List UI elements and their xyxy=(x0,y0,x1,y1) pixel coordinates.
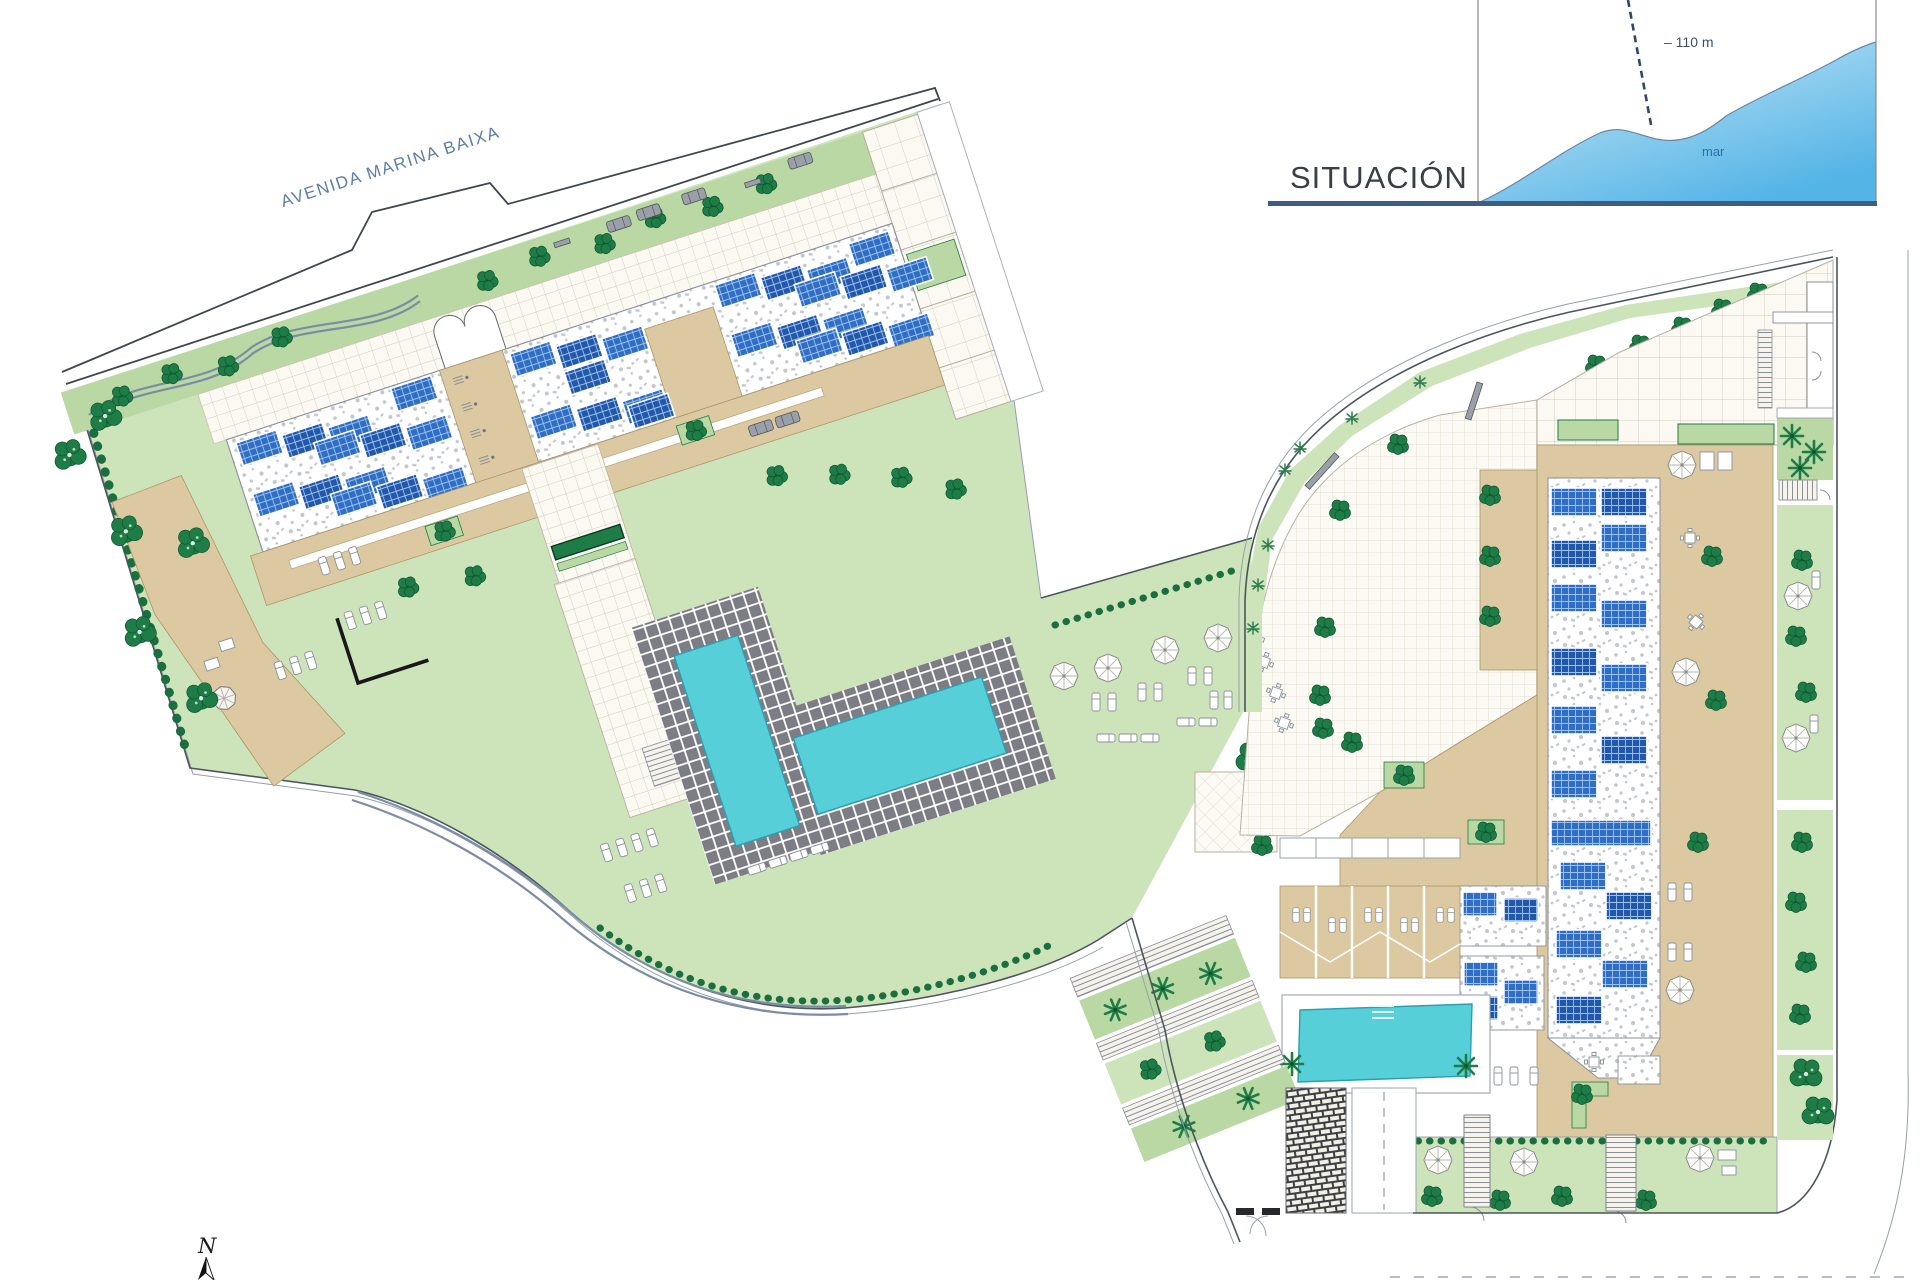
tree-icon xyxy=(1706,690,1727,711)
tree-icon xyxy=(1796,952,1817,973)
palm-icon xyxy=(1455,1055,1477,1077)
parasol-icon xyxy=(1784,582,1812,610)
solar-panel xyxy=(1463,892,1497,916)
lounger-icon xyxy=(1530,1067,1538,1085)
parasol-icon xyxy=(1424,1146,1452,1174)
lounger-icon xyxy=(1224,691,1232,709)
parasol-icon xyxy=(1672,658,1700,686)
spa-pad xyxy=(1618,1056,1660,1084)
solar-panel xyxy=(1551,820,1651,846)
lounger-icon xyxy=(1700,452,1714,470)
lounger-icon xyxy=(1718,452,1732,470)
tree-icon xyxy=(1688,832,1709,853)
east-garden-strips xyxy=(1777,408,1834,1140)
tree-icon xyxy=(1552,1186,1573,1207)
solar-panel xyxy=(1551,770,1597,798)
tree-icon xyxy=(1315,617,1336,638)
tree-icon xyxy=(1490,1190,1511,1211)
tree-icon xyxy=(1792,550,1813,571)
solar-panel xyxy=(1551,488,1597,516)
lounger-icon xyxy=(1177,718,1195,726)
tree-icon xyxy=(1330,500,1351,521)
tree-icon xyxy=(1796,682,1817,703)
tree-icon xyxy=(1313,718,1334,739)
solar-panel xyxy=(1606,892,1652,920)
tree-icon xyxy=(1480,485,1501,506)
lounger-icon xyxy=(1329,918,1335,932)
tree-icon xyxy=(1792,832,1813,853)
tree-icon xyxy=(1702,546,1723,567)
lounger-icon xyxy=(1138,683,1146,701)
solar-panel xyxy=(1551,540,1597,568)
lounger-icon xyxy=(1668,883,1676,901)
tree-icon xyxy=(1790,1004,1811,1025)
tree-icon xyxy=(1572,1084,1593,1105)
swimming-pool xyxy=(1298,1004,1472,1082)
lounger-icon xyxy=(1340,918,1346,932)
tree-icon xyxy=(1786,892,1807,913)
solar-panel xyxy=(1601,488,1647,516)
inset-title: SITUACIÓN xyxy=(1290,160,1468,195)
tree-icon xyxy=(1394,765,1415,786)
title-underline xyxy=(1268,201,1877,206)
solar-panel xyxy=(1464,962,1498,986)
solar-panel xyxy=(1504,980,1538,1004)
planter xyxy=(1678,424,1774,444)
palm-icon xyxy=(1781,425,1803,447)
tree-icon xyxy=(1480,606,1501,627)
lounger-icon xyxy=(1119,734,1137,742)
parasol-icon xyxy=(1151,636,1179,664)
parasol-icon xyxy=(1666,976,1694,1004)
lounger-icon xyxy=(1668,943,1676,961)
palm-icon xyxy=(1803,441,1825,463)
lounger-icon xyxy=(1204,667,1212,685)
parasol-icon xyxy=(1050,662,1078,690)
solar-panel xyxy=(1551,584,1597,612)
distance-label: – 110 m xyxy=(1664,34,1714,50)
right-roof-solar-array xyxy=(1548,478,1660,1078)
tree-icon xyxy=(1480,546,1501,567)
brick-ramp xyxy=(1286,1088,1346,1213)
tree-icon xyxy=(1310,685,1331,706)
parasol-icon xyxy=(1668,451,1696,479)
solar-panel xyxy=(1556,930,1602,958)
lounger-icon xyxy=(1304,908,1310,922)
lounger-icon xyxy=(1365,908,1371,922)
lounger-icon xyxy=(1401,918,1407,932)
lounger-icon xyxy=(1097,734,1115,742)
lounger-icon xyxy=(1437,908,1443,922)
site-plan-drawing: AVENIDA MARINA BAIXA xyxy=(0,0,1920,1280)
canopy xyxy=(1773,312,1833,323)
lounger-icon xyxy=(1448,908,1454,922)
tree-icon xyxy=(1636,1190,1657,1211)
lounger-icon xyxy=(1092,693,1100,711)
solar-panel xyxy=(1551,706,1597,734)
lounger-icon xyxy=(1412,918,1418,932)
solar-panel xyxy=(1556,996,1602,1024)
lounger-icon xyxy=(1108,693,1116,711)
tree-icon xyxy=(1802,1097,1834,1124)
solar-panel xyxy=(1601,524,1647,552)
tree-icon xyxy=(1422,1186,1443,1207)
lounger-icon xyxy=(1376,908,1382,922)
entrance-bay xyxy=(1807,282,1833,420)
lounger-icon xyxy=(1210,691,1218,709)
tree-icon xyxy=(1476,822,1497,843)
solar-panel xyxy=(1601,664,1647,692)
parasol-icon xyxy=(1204,624,1232,652)
stairs-icon xyxy=(1758,330,1772,408)
lounger-icon xyxy=(1494,1067,1502,1085)
solar-panel xyxy=(1551,648,1597,676)
lounger-icon xyxy=(1718,1150,1736,1160)
tree-icon xyxy=(1786,626,1807,647)
parasol-icon xyxy=(1686,1144,1714,1172)
lounger-icon xyxy=(1141,734,1159,742)
solar-panel xyxy=(1601,600,1647,628)
parasol-icon xyxy=(1094,654,1122,682)
tree-icon xyxy=(1252,835,1273,856)
parasol-icon xyxy=(1510,1148,1538,1176)
lounger-icon xyxy=(1684,883,1692,901)
lounger-icon xyxy=(1722,1166,1736,1175)
canopy xyxy=(1777,408,1833,418)
planter xyxy=(1558,420,1618,440)
palm-icon xyxy=(1789,457,1811,479)
solar-panel xyxy=(1560,862,1606,890)
tree-icon xyxy=(1342,732,1363,753)
lounger-icon xyxy=(1684,943,1692,961)
tree-icon xyxy=(1388,434,1409,455)
solar-panel xyxy=(1504,898,1538,922)
lounger-icon xyxy=(1510,1067,1518,1085)
north-label: N xyxy=(197,1234,217,1258)
site-plan-sheet: AVENIDA MARINA BAIXA xyxy=(0,0,1920,1280)
stairs-icon xyxy=(1464,1115,1490,1207)
stairs-icon xyxy=(1606,1135,1636,1211)
parasol-icon xyxy=(1782,724,1810,752)
lounger-icon xyxy=(1199,718,1217,726)
lounger-icon xyxy=(1154,683,1162,701)
lounger-icon xyxy=(1293,908,1299,922)
sea-label: mar xyxy=(1702,144,1725,159)
lounger-icon xyxy=(1188,667,1196,685)
tree-icon xyxy=(1790,1059,1822,1086)
solar-panel xyxy=(1601,736,1647,764)
solar-panel xyxy=(1602,960,1648,988)
stairs-icon xyxy=(1779,480,1817,500)
lounger-icon xyxy=(1810,715,1818,733)
lounger-icon xyxy=(1812,571,1820,589)
